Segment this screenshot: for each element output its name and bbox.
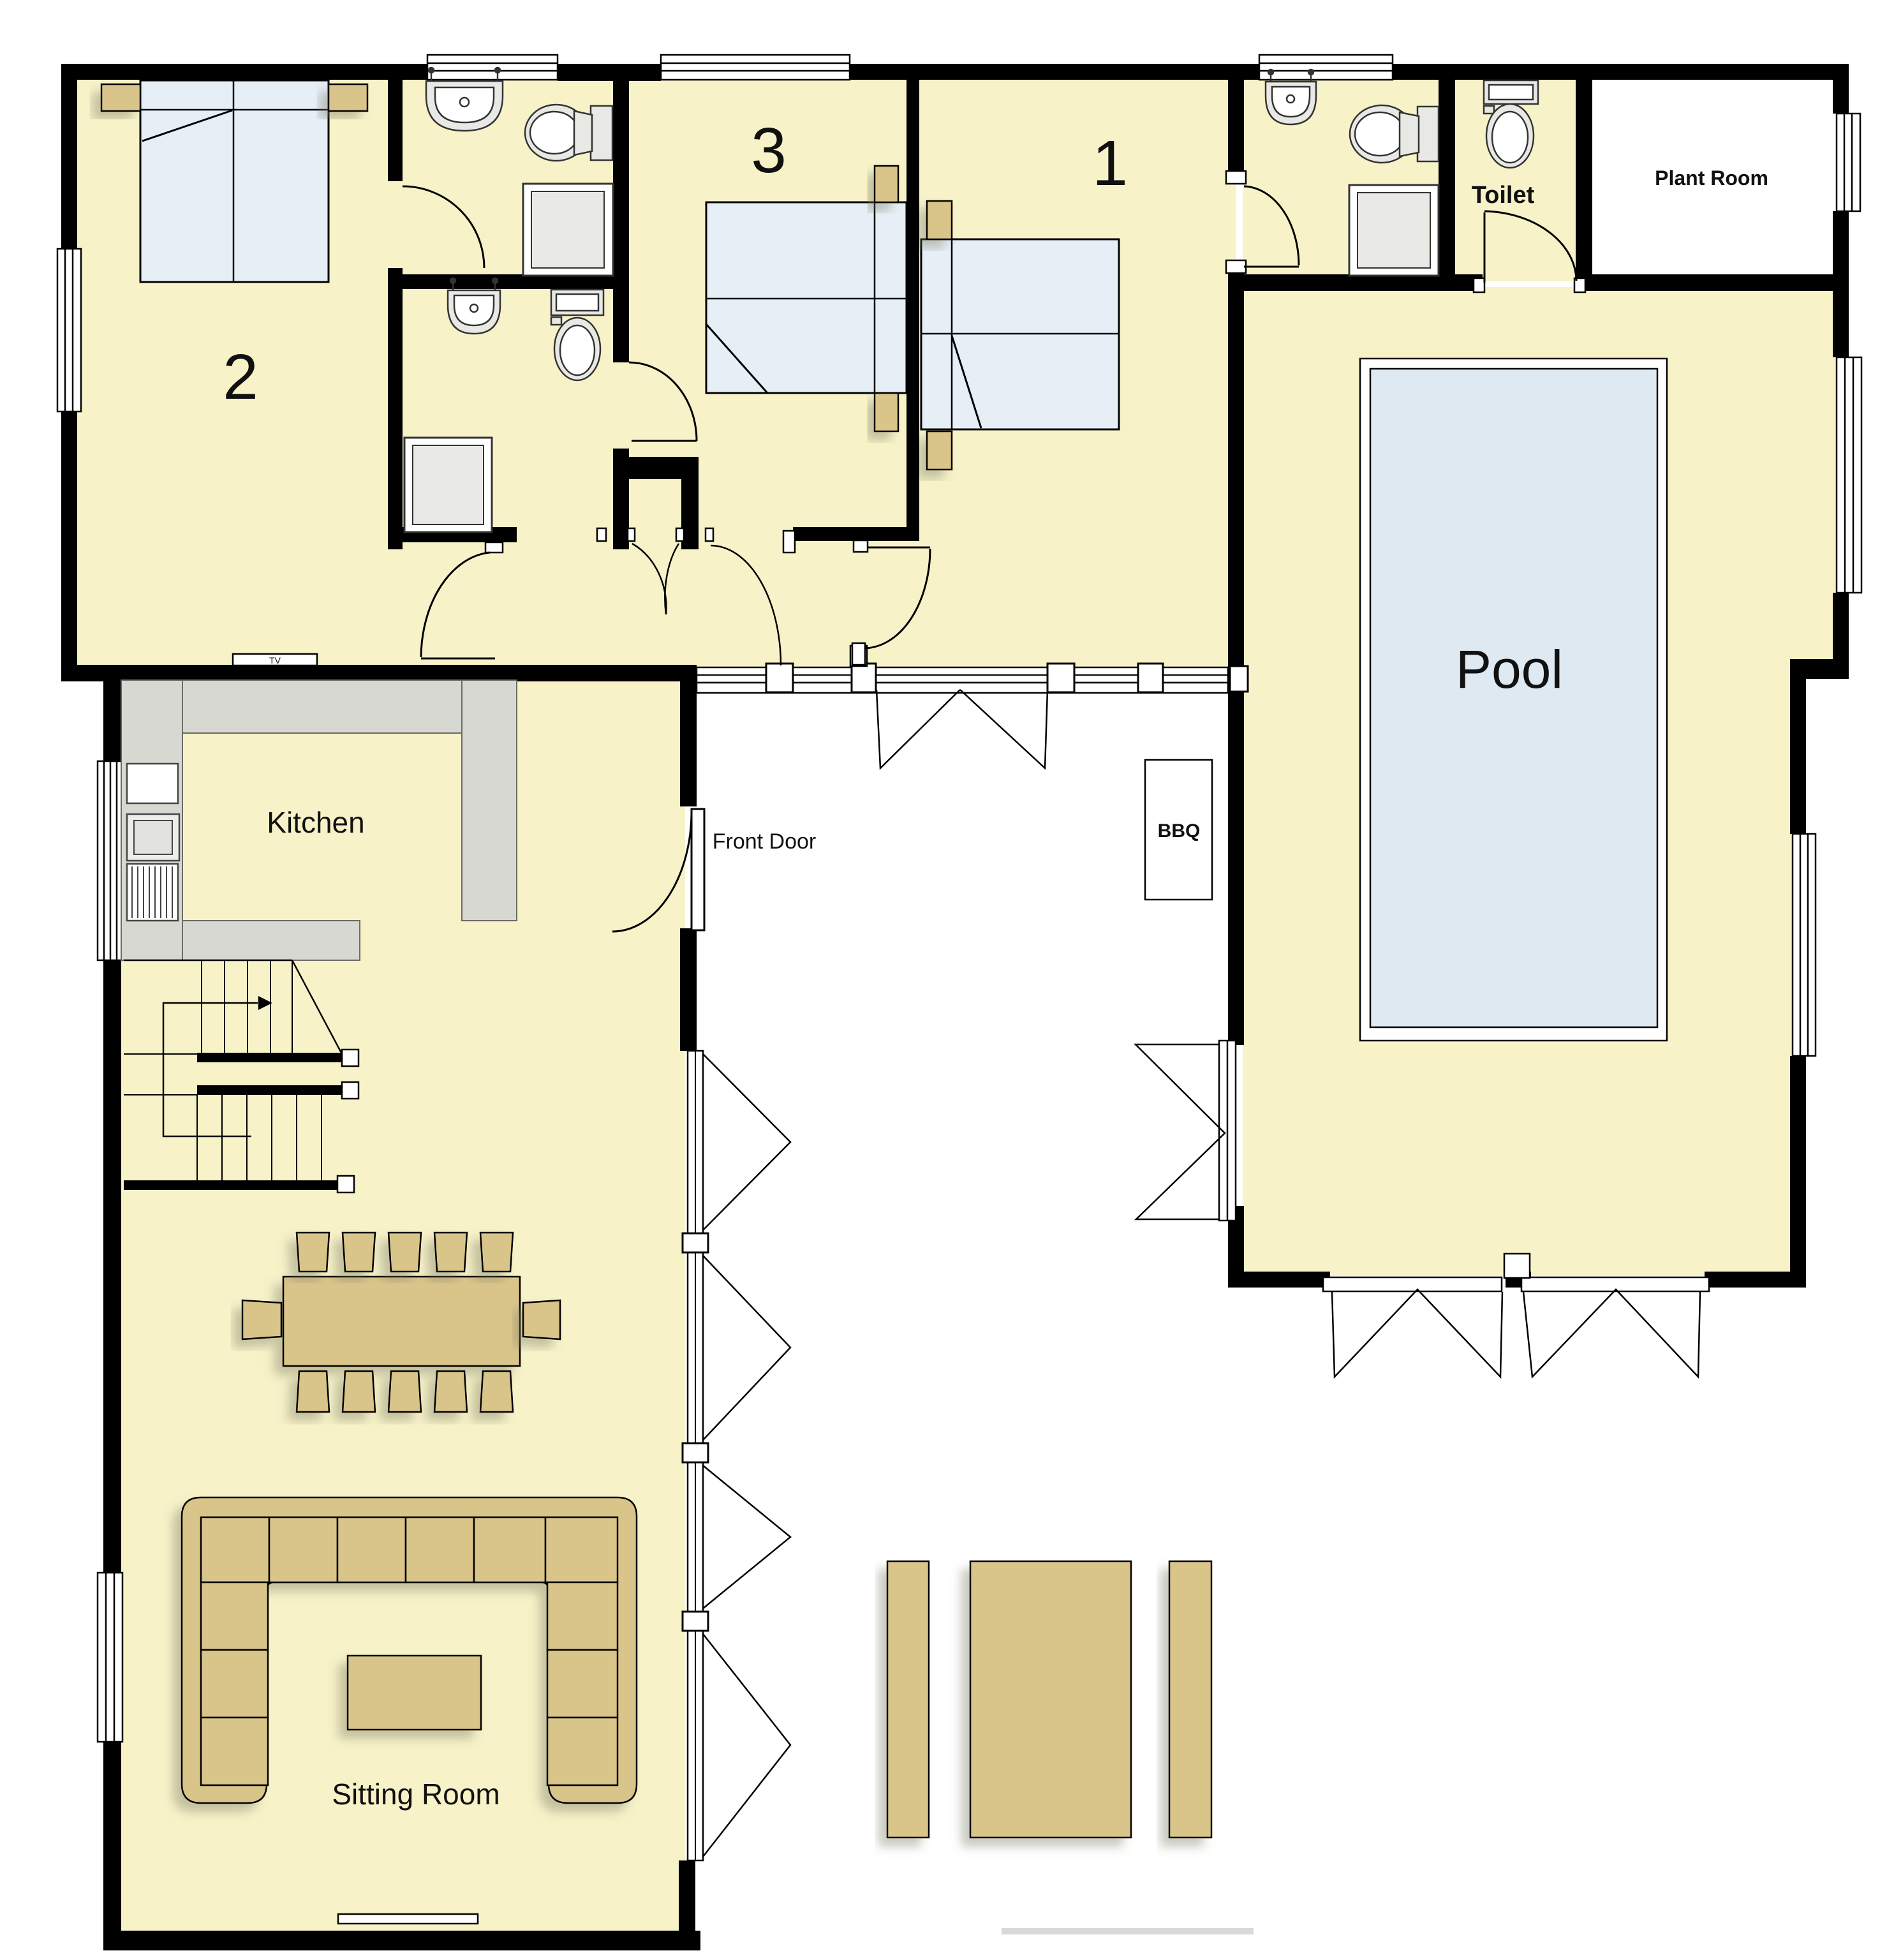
svg-text:BBQ: BBQ (1158, 820, 1201, 842)
svg-text:Front Door: Front Door (713, 829, 817, 854)
svg-text:TV: TV (269, 655, 281, 665)
svg-text:Plant Room: Plant Room (1655, 167, 1768, 189)
svg-text:2: 2 (223, 341, 258, 413)
svg-text:1: 1 (1092, 128, 1128, 199)
svg-text:3: 3 (751, 115, 787, 186)
svg-text:Toilet: Toilet (1472, 182, 1535, 209)
svg-text:Pool: Pool (1456, 639, 1563, 699)
svg-text:Kitchen: Kitchen (267, 806, 364, 839)
svg-text:Sitting Room: Sitting Room (332, 1778, 500, 1811)
